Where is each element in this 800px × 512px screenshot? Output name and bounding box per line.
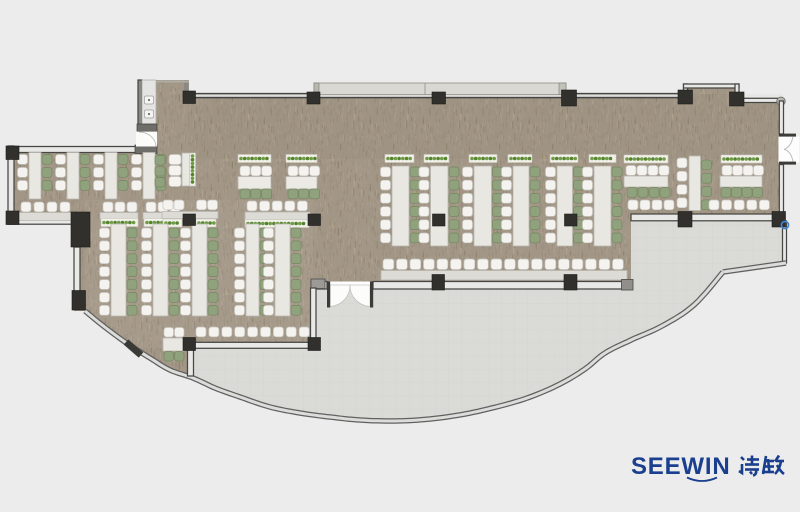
svg-text:SEEWIN: SEEWIN (631, 453, 730, 480)
